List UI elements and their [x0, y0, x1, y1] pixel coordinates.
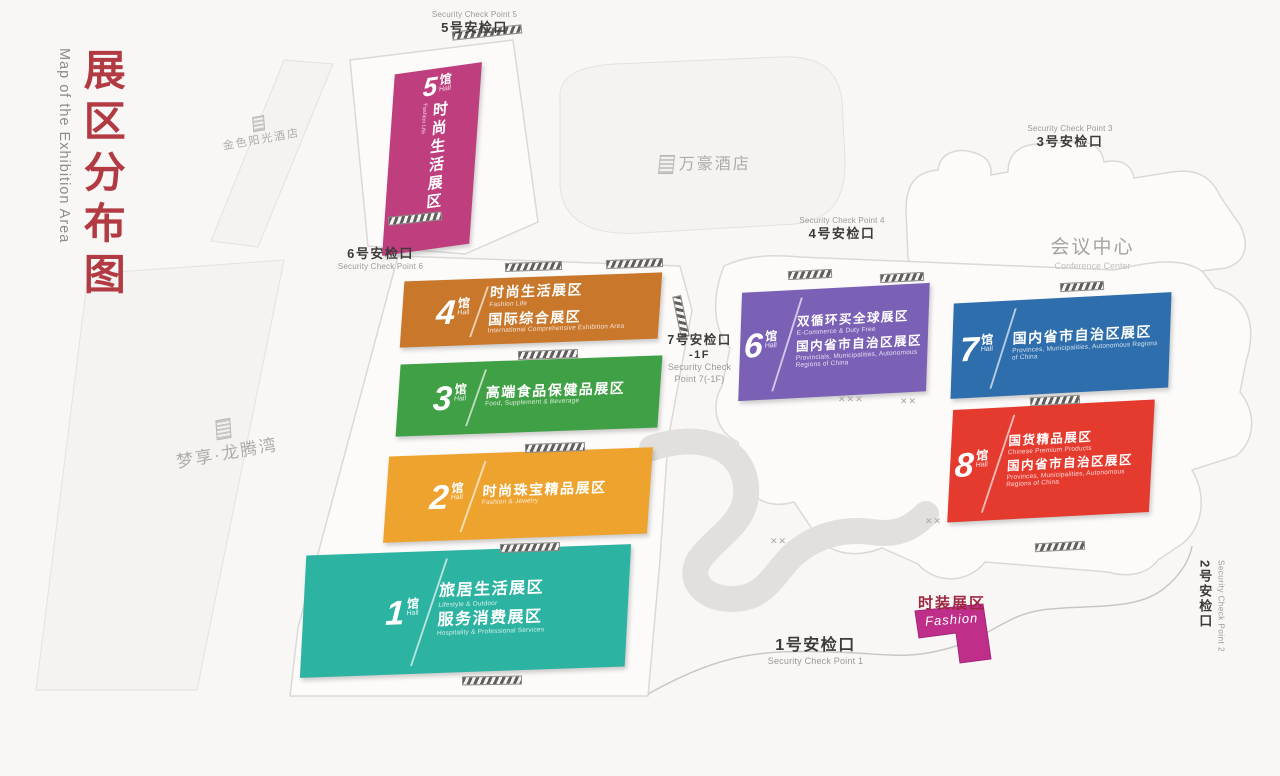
conference-center-label: 会议中心 Conference Center	[1010, 232, 1175, 271]
door-mark: ✕✕	[770, 536, 787, 547]
hall-unit-en: Hall	[976, 461, 988, 469]
checkpoint-3-label: Security Check Point 3 3号安检口	[990, 124, 1150, 150]
hall-4-number: 4 馆 Hall	[435, 297, 470, 329]
checkpoint-2-en: Security Check Point 2	[1215, 560, 1225, 670]
door-mark: ✕✕	[925, 516, 942, 527]
hall-unit-en: Hall	[450, 494, 463, 501]
checkpoint-4-label: Security Check Point 4 4号安检口	[772, 216, 912, 242]
divider	[469, 286, 488, 337]
hall-4-title-en: Fashion Life	[489, 300, 527, 309]
hall-unit-zh: 馆	[458, 297, 471, 309]
hall-5-block: 5 馆 Hall Fashion Life 时尚生活展区	[382, 62, 482, 256]
hall-6-number: 6 馆 Hall	[743, 330, 777, 362]
checkpoint-7-en-line1: Security Check	[652, 362, 747, 373]
checkpoint-4-zh: 4号安检口	[772, 226, 912, 242]
checkpoint-3-zh: 3号安检口	[990, 134, 1150, 150]
hall-3-block: 3 馆 Hall 高端食品保健品展区 Food, Supplement & Be…	[396, 355, 663, 436]
checkpoint-1-zh: 1号安检口	[738, 636, 893, 656]
hall-number-text: 1	[385, 598, 406, 629]
hall-number-text: 2	[429, 482, 450, 513]
checkpoint-2-label: 2号安检口 Security Check Point 2	[1196, 560, 1225, 670]
hall-4-title-zh: 时尚生活展区	[490, 282, 584, 301]
hall-unit-en: Hall	[765, 342, 777, 350]
hall-unit-en: Hall	[406, 609, 418, 616]
exhibition-map: Map of the Exhibition Area 展区分布图 5 馆 Hal…	[0, 0, 1280, 776]
checkpoint-7-floor: -1F	[652, 349, 747, 363]
hall-number-text: 8	[954, 450, 975, 482]
building-golden-sunshine-hotel	[211, 60, 333, 247]
checkpoint-6-en: Security Check Point 6	[298, 262, 463, 272]
door-mark: ✕✕	[900, 396, 917, 407]
hall-unit-zh: 馆	[454, 383, 467, 395]
checkpoint-5-en: Security Check Point 5	[382, 10, 567, 20]
hall-8-block: 8 馆 Hall 国货精品展区 Chinese Premium Products…	[947, 399, 1155, 522]
hall-number-text: 4	[435, 297, 456, 328]
checkpoint-7-zh: 7号安检口	[652, 333, 747, 349]
hall-unit-zh: 馆	[981, 334, 993, 347]
checkpoint-4-en: Security Check Point 4	[772, 216, 912, 226]
hall-3-number: 3 馆 Hall	[432, 383, 467, 415]
page-title: Map of the Exhibition Area 展区分布图	[56, 48, 124, 303]
hall-1-number: 1 馆 Hall	[385, 597, 420, 629]
checkpoint-1-en: Security Check Point 1	[738, 656, 893, 667]
hall-5-title-en: Fashion Life	[419, 103, 427, 134]
hall-2-block: 2 馆 Hall 时尚珠宝精品展区 Fashion & Jewelry	[383, 447, 653, 542]
hall-2-title-zh: 时尚珠宝精品展区	[482, 479, 607, 499]
hall-7-number: 7 馆 Hall	[959, 334, 993, 366]
checkpoint-7-label: 7号安检口 -1F Security Check Point 7(-1F)	[652, 333, 747, 385]
hall-unit-zh: 馆	[407, 597, 420, 609]
hall-5-number: 5 馆 Hall	[422, 72, 452, 100]
hall-unit-zh: 馆	[765, 330, 777, 343]
page-title-english: Map of the Exhibition Area	[56, 48, 72, 303]
hall-8-number: 8 馆 Hall	[954, 449, 989, 481]
hall-unit-zh: 馆	[976, 449, 989, 462]
hall-4-block: 4 馆 Hall 时尚生活展区 Fashion Life 国际综合展区 Inte…	[400, 272, 662, 347]
hall-1-block: 1 馆 Hall 旅居生活展区 Lifestyle & Outdoor 服务消费…	[300, 544, 631, 678]
hall-7-block: 7 馆 Hall 国内省市自治区展区 Provinces, Municipali…	[950, 292, 1171, 399]
page-title-chinese: 展区分布图	[78, 48, 124, 303]
hall-unit-zh: 馆	[451, 482, 464, 494]
conference-center-en: Conference Center	[1010, 261, 1175, 271]
hall-2-title-en: Fashion & Jewelry	[482, 497, 539, 506]
hall-6-block: 6 馆 Hall 双循环买全球展区 E-Commerce & Duty Free…	[738, 283, 930, 401]
building-icon	[215, 417, 231, 440]
marriott-hotel-label: 万豪酒店	[620, 150, 790, 174]
hall-unit-en: Hall	[981, 346, 993, 354]
hall-unit-en: Hall	[439, 85, 451, 94]
marriott-hotel-name: 万豪酒店	[679, 156, 751, 173]
divider	[465, 369, 486, 426]
vent-hatch	[462, 675, 522, 685]
hall-number-text: 5	[422, 74, 438, 100]
building-icon	[252, 115, 265, 132]
building-icon	[658, 155, 675, 174]
checkpoint-6-label: 6号安检口 Security Check Point 6	[298, 246, 463, 272]
building-marriott-hotel	[560, 57, 845, 234]
hall-number-text: 7	[959, 334, 979, 366]
checkpoint-5-zh: 5号安检口	[382, 20, 567, 36]
hall-1-title-en: Lifestyle & Outdoor	[438, 599, 497, 609]
door-mark: ✕✕✕	[838, 394, 864, 405]
checkpoint-2-zh: 2号安检口	[1196, 560, 1212, 670]
checkpoint-7-en-line2: Point 7(-1F)	[652, 374, 747, 385]
hall-2-number: 2 馆 Hall	[429, 482, 464, 514]
hall-unit-en: Hall	[454, 395, 467, 402]
hall-number-text: 3	[432, 383, 453, 414]
hall-unit-en: Hall	[457, 309, 470, 316]
checkpoint-1-label: 1号安检口 Security Check Point 1	[738, 636, 893, 667]
conference-center-zh: 会议中心	[1050, 237, 1134, 258]
hall-1-title-zh: 旅居生活展区	[439, 579, 545, 601]
checkpoint-5-label: Security Check Point 5 5号安检口	[382, 10, 567, 36]
checkpoint-3-en: Security Check Point 3	[990, 124, 1150, 134]
checkpoint-6-zh: 6号安检口	[298, 246, 463, 262]
